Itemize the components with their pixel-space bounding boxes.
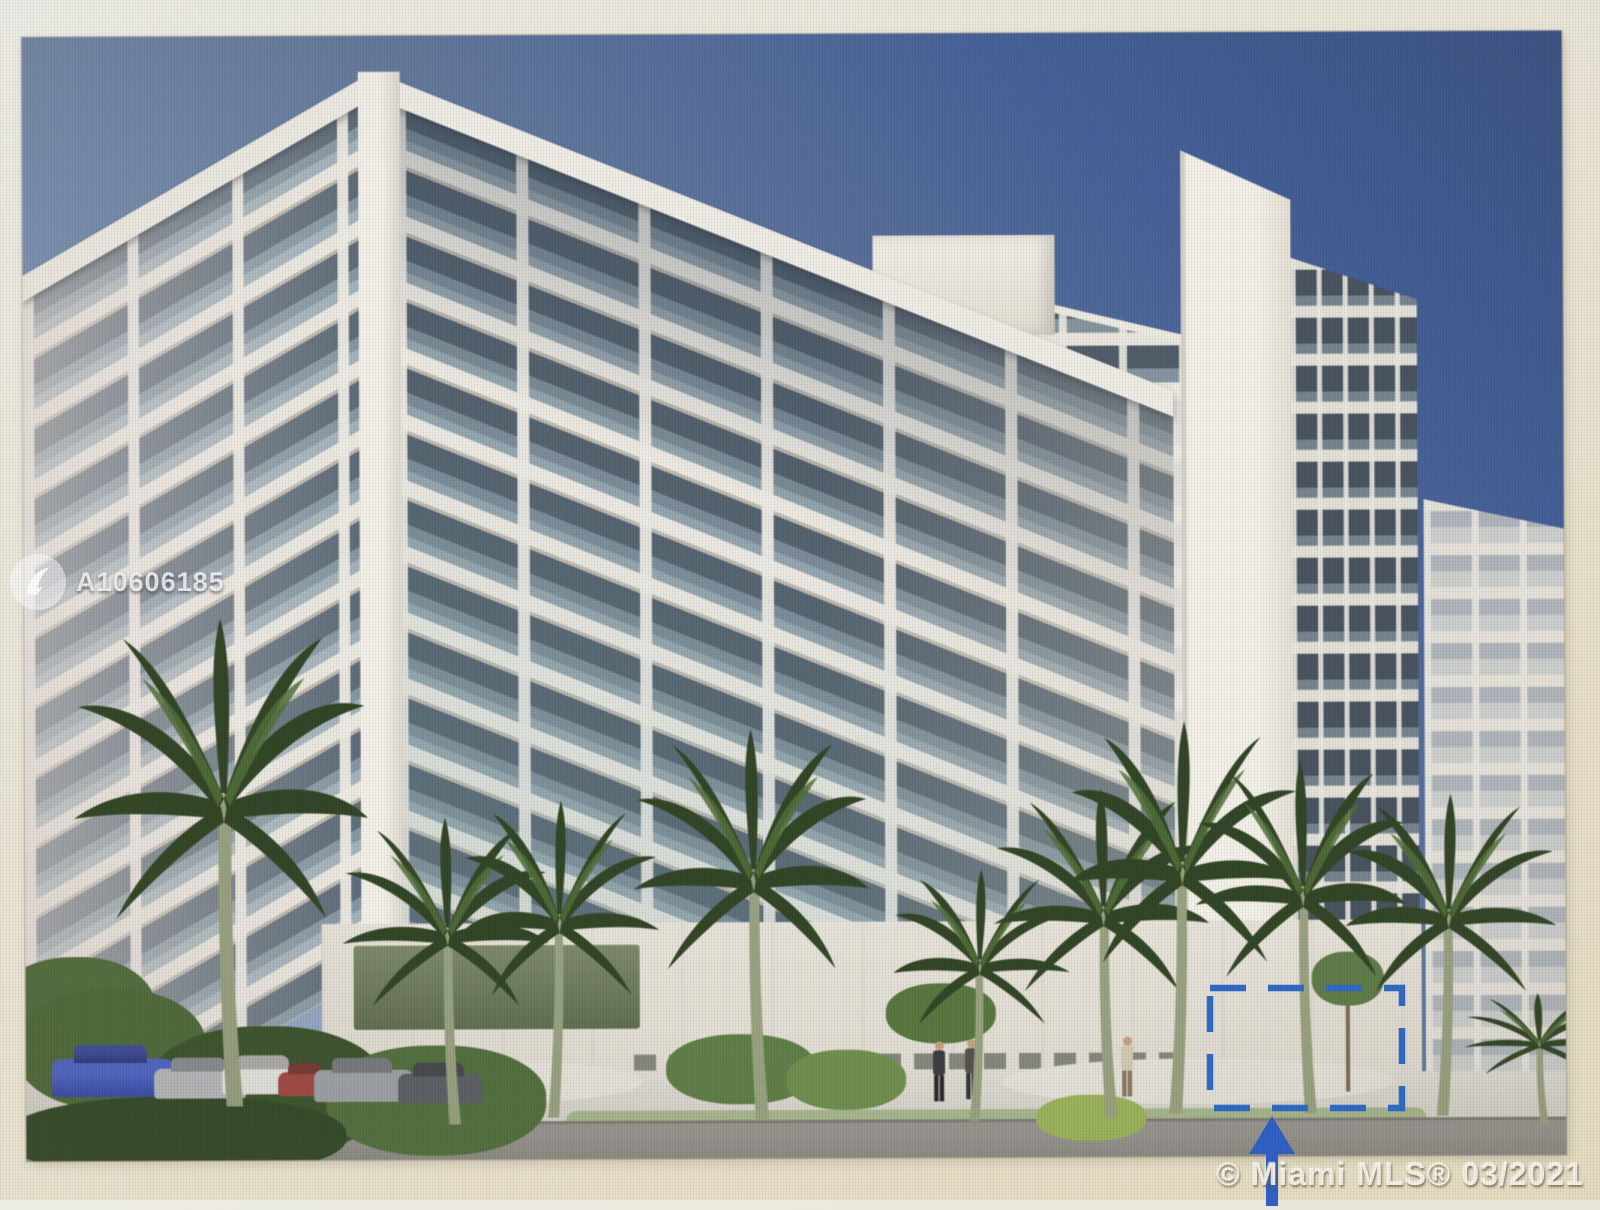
listing-id-watermark: A10606185 (76, 567, 225, 598)
palm-tree (70, 602, 372, 1123)
palm-tree (1463, 988, 1567, 1129)
miami-mls-logo-icon (10, 554, 66, 610)
mls-watermark: A10606185 (10, 554, 225, 610)
highlight-dashed-box (1210, 988, 1402, 1108)
copyright-watermark: © Miami MLS® 03/2021 (1216, 1156, 1584, 1193)
palm-tree (631, 716, 873, 1133)
